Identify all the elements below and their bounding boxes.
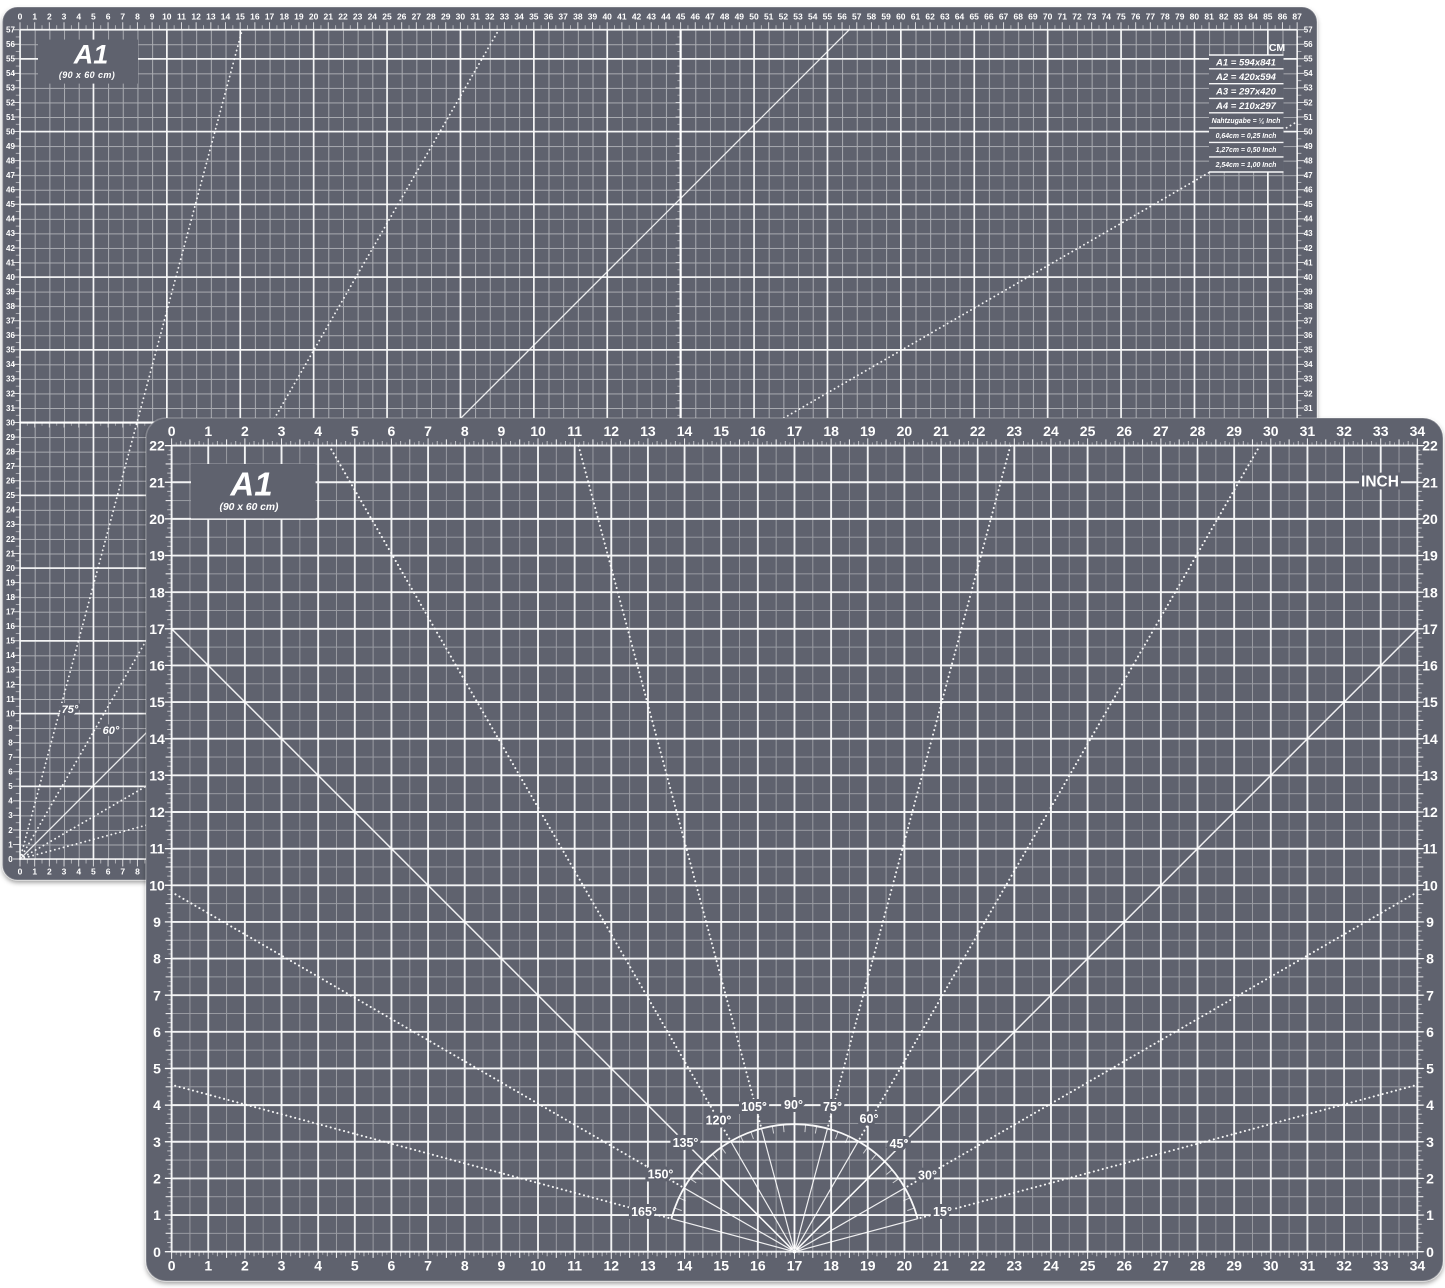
- svg-text:5: 5: [351, 423, 359, 439]
- svg-text:90°: 90°: [784, 1098, 803, 1112]
- svg-text:30°: 30°: [918, 1169, 937, 1183]
- svg-text:58: 58: [867, 11, 877, 21]
- svg-text:27: 27: [1153, 1258, 1169, 1274]
- svg-text:21: 21: [933, 1258, 949, 1274]
- svg-text:32: 32: [6, 389, 15, 398]
- svg-text:84: 84: [1248, 11, 1258, 21]
- svg-text:21: 21: [933, 423, 949, 439]
- svg-text:19: 19: [294, 11, 304, 21]
- svg-text:24: 24: [1043, 423, 1059, 439]
- svg-text:23: 23: [353, 11, 363, 21]
- svg-text:3: 3: [153, 1134, 161, 1150]
- svg-text:83: 83: [1234, 11, 1244, 21]
- svg-text:30: 30: [1263, 1258, 1279, 1274]
- svg-text:29: 29: [6, 433, 15, 442]
- svg-text:12: 12: [1422, 804, 1438, 820]
- svg-text:57: 57: [6, 26, 15, 35]
- svg-text:26: 26: [1116, 1258, 1132, 1274]
- svg-text:1: 1: [8, 840, 13, 849]
- svg-text:48: 48: [720, 11, 730, 21]
- svg-text:7: 7: [153, 987, 161, 1003]
- svg-text:32: 32: [1336, 1258, 1352, 1274]
- svg-text:11: 11: [177, 11, 186, 21]
- svg-text:16: 16: [1422, 658, 1438, 674]
- svg-text:2: 2: [47, 867, 52, 877]
- svg-text:5: 5: [8, 782, 13, 791]
- svg-text:14: 14: [677, 423, 693, 439]
- svg-text:64: 64: [955, 11, 965, 21]
- svg-text:46: 46: [1304, 186, 1313, 195]
- svg-text:86: 86: [1278, 11, 1288, 21]
- svg-text:82: 82: [1219, 11, 1229, 21]
- svg-text:42: 42: [6, 244, 15, 253]
- svg-text:31: 31: [1300, 423, 1316, 439]
- svg-text:6: 6: [1426, 1024, 1434, 1040]
- svg-text:30: 30: [456, 11, 466, 21]
- svg-text:22: 22: [338, 11, 348, 21]
- svg-text:31: 31: [6, 404, 15, 413]
- svg-text:1,27cm = 0,50 Inch: 1,27cm = 0,50 Inch: [1216, 147, 1277, 154]
- svg-text:26: 26: [1116, 423, 1132, 439]
- svg-text:17: 17: [787, 423, 803, 439]
- svg-text:6: 6: [153, 1024, 161, 1040]
- svg-text:0: 0: [1426, 1244, 1434, 1260]
- svg-text:44: 44: [6, 215, 15, 224]
- svg-text:2: 2: [8, 826, 13, 835]
- svg-text:27: 27: [6, 462, 15, 471]
- svg-text:60°: 60°: [860, 1112, 879, 1126]
- svg-text:INCH: INCH: [1361, 474, 1399, 491]
- svg-text:51: 51: [6, 113, 15, 122]
- svg-text:30: 30: [1263, 423, 1279, 439]
- svg-text:15: 15: [1422, 694, 1438, 710]
- svg-text:11: 11: [567, 423, 582, 439]
- svg-text:18: 18: [149, 584, 165, 600]
- svg-text:81: 81: [1204, 11, 1214, 21]
- svg-text:15: 15: [235, 11, 245, 21]
- svg-text:8: 8: [135, 11, 140, 21]
- svg-text:29: 29: [441, 11, 451, 21]
- svg-text:22: 22: [1422, 438, 1438, 454]
- svg-text:31: 31: [470, 11, 480, 21]
- svg-text:26: 26: [397, 11, 407, 21]
- svg-text:A1: A1: [73, 40, 109, 70]
- svg-text:10: 10: [530, 1258, 546, 1274]
- svg-text:5: 5: [91, 11, 96, 21]
- svg-text:56: 56: [1304, 40, 1313, 49]
- svg-text:77: 77: [1146, 11, 1156, 21]
- svg-text:16: 16: [250, 11, 260, 21]
- svg-text:16: 16: [750, 423, 766, 439]
- svg-text:24: 24: [368, 11, 378, 21]
- svg-text:3: 3: [1426, 1134, 1434, 1150]
- svg-text:20: 20: [149, 511, 165, 527]
- svg-text:56: 56: [6, 40, 15, 49]
- svg-text:27: 27: [1153, 423, 1169, 439]
- svg-text:17: 17: [149, 621, 165, 637]
- svg-text:12: 12: [149, 804, 165, 820]
- svg-text:165°: 165°: [631, 1205, 657, 1219]
- svg-text:30: 30: [6, 418, 15, 427]
- svg-text:2,54cm = 1,00 Inch: 2,54cm = 1,00 Inch: [1215, 162, 1277, 169]
- svg-text:39: 39: [588, 11, 598, 21]
- svg-text:8: 8: [1426, 951, 1434, 967]
- svg-text:0: 0: [8, 855, 13, 864]
- svg-text:21: 21: [149, 474, 165, 490]
- svg-text:7: 7: [120, 11, 125, 21]
- svg-text:54: 54: [1304, 69, 1313, 78]
- svg-text:45°: 45°: [890, 1137, 909, 1151]
- svg-text:40: 40: [6, 273, 15, 282]
- svg-text:14: 14: [221, 11, 231, 21]
- svg-text:1: 1: [32, 867, 37, 877]
- svg-text:28: 28: [426, 11, 436, 21]
- svg-text:A2 = 420x594: A2 = 420x594: [1215, 72, 1277, 83]
- svg-text:3: 3: [278, 1258, 286, 1274]
- svg-text:50: 50: [749, 11, 759, 21]
- svg-text:135°: 135°: [673, 1136, 699, 1150]
- svg-text:49: 49: [6, 142, 15, 151]
- svg-text:13: 13: [206, 11, 216, 21]
- svg-text:47: 47: [1304, 171, 1313, 180]
- svg-text:33: 33: [6, 375, 15, 384]
- svg-text:50: 50: [1304, 127, 1313, 136]
- svg-text:55: 55: [1304, 55, 1313, 64]
- svg-text:19: 19: [860, 1258, 876, 1274]
- svg-text:13: 13: [149, 767, 165, 783]
- svg-text:87: 87: [1292, 11, 1302, 21]
- svg-text:20: 20: [6, 564, 15, 573]
- svg-text:16: 16: [6, 622, 15, 631]
- svg-text:69: 69: [1028, 11, 1038, 21]
- svg-text:43: 43: [6, 229, 15, 238]
- svg-text:6: 6: [388, 423, 396, 439]
- svg-text:63: 63: [940, 11, 950, 21]
- svg-text:48: 48: [1304, 156, 1313, 165]
- svg-text:0: 0: [153, 1244, 161, 1260]
- svg-text:75: 75: [1116, 11, 1126, 21]
- svg-text:45: 45: [676, 11, 686, 21]
- svg-text:4: 4: [153, 1097, 161, 1113]
- svg-text:15: 15: [713, 423, 729, 439]
- svg-text:53: 53: [6, 84, 15, 93]
- svg-text:70: 70: [1043, 11, 1053, 21]
- svg-text:60: 60: [896, 11, 906, 21]
- svg-text:11: 11: [6, 695, 15, 704]
- svg-text:34: 34: [1410, 1258, 1426, 1274]
- svg-text:74: 74: [1102, 11, 1112, 21]
- svg-text:12: 12: [6, 680, 15, 689]
- svg-text:79: 79: [1175, 11, 1185, 21]
- svg-text:33: 33: [1304, 375, 1313, 384]
- svg-text:13: 13: [640, 423, 656, 439]
- svg-text:1: 1: [32, 11, 37, 21]
- svg-text:85: 85: [1263, 11, 1273, 21]
- svg-text:28: 28: [1190, 1258, 1206, 1274]
- svg-text:0: 0: [168, 423, 176, 439]
- svg-text:14: 14: [6, 651, 15, 660]
- svg-text:52: 52: [1304, 98, 1313, 107]
- svg-text:2: 2: [241, 423, 249, 439]
- svg-text:27: 27: [412, 11, 422, 21]
- svg-text:40: 40: [602, 11, 612, 21]
- svg-text:21: 21: [1422, 474, 1438, 490]
- svg-text:51: 51: [764, 11, 774, 21]
- svg-text:9: 9: [497, 423, 505, 439]
- svg-text:28: 28: [1190, 423, 1206, 439]
- svg-text:3: 3: [62, 11, 67, 21]
- svg-text:8: 8: [461, 423, 469, 439]
- svg-text:43: 43: [647, 11, 657, 21]
- svg-text:150°: 150°: [648, 1168, 674, 1182]
- svg-text:18: 18: [6, 593, 15, 602]
- svg-text:22: 22: [6, 535, 15, 544]
- svg-text:(90 x 60 cm): (90 x 60 cm): [59, 70, 115, 80]
- svg-text:17: 17: [265, 11, 275, 21]
- svg-text:0: 0: [18, 867, 23, 877]
- svg-text:7: 7: [8, 753, 13, 762]
- svg-text:56: 56: [837, 11, 847, 21]
- svg-text:32: 32: [1336, 423, 1352, 439]
- svg-text:19: 19: [149, 548, 165, 564]
- svg-text:17: 17: [1422, 621, 1438, 637]
- svg-text:A1 = 594x841: A1 = 594x841: [1215, 58, 1276, 69]
- svg-text:8: 8: [153, 951, 161, 967]
- svg-text:2: 2: [47, 11, 52, 21]
- svg-text:4: 4: [314, 423, 322, 439]
- svg-text:15: 15: [713, 1258, 729, 1274]
- svg-text:43: 43: [1304, 229, 1313, 238]
- svg-text:55: 55: [6, 55, 15, 64]
- svg-text:10: 10: [530, 423, 546, 439]
- svg-text:12: 12: [191, 11, 201, 21]
- svg-text:67: 67: [999, 11, 1009, 21]
- svg-text:105°: 105°: [741, 1100, 767, 1114]
- svg-text:25: 25: [6, 491, 15, 500]
- svg-text:A1: A1: [229, 466, 272, 503]
- svg-text:2: 2: [153, 1171, 161, 1187]
- svg-text:66: 66: [984, 11, 994, 21]
- svg-text:8: 8: [135, 867, 140, 877]
- svg-text:11: 11: [567, 1258, 582, 1274]
- svg-text:37: 37: [558, 11, 568, 21]
- svg-text:49: 49: [1304, 142, 1313, 151]
- svg-text:80: 80: [1190, 11, 1200, 21]
- svg-text:11: 11: [1423, 841, 1438, 857]
- svg-text:7: 7: [120, 867, 125, 877]
- svg-text:48: 48: [6, 156, 15, 165]
- svg-text:A4 = 210x297: A4 = 210x297: [1215, 101, 1277, 112]
- svg-text:22: 22: [149, 438, 165, 454]
- svg-text:49: 49: [735, 11, 745, 21]
- svg-text:42: 42: [1304, 244, 1313, 253]
- svg-text:17: 17: [6, 608, 15, 617]
- svg-text:19: 19: [1422, 548, 1438, 564]
- svg-text:20: 20: [897, 1258, 913, 1274]
- svg-text:9: 9: [497, 1258, 505, 1274]
- svg-text:42: 42: [632, 11, 642, 21]
- svg-text:72: 72: [1072, 11, 1082, 21]
- svg-text:38: 38: [6, 302, 15, 311]
- svg-text:53: 53: [793, 11, 803, 21]
- svg-text:10: 10: [6, 709, 15, 718]
- svg-text:20: 20: [309, 11, 319, 21]
- svg-text:4: 4: [1426, 1097, 1434, 1113]
- svg-text:11: 11: [150, 841, 165, 857]
- svg-text:62: 62: [925, 11, 935, 21]
- svg-text:6: 6: [388, 1258, 396, 1274]
- svg-text:29: 29: [1226, 423, 1242, 439]
- svg-text:12: 12: [603, 423, 619, 439]
- svg-text:8: 8: [8, 738, 13, 747]
- svg-text:5: 5: [153, 1061, 161, 1077]
- svg-text:13: 13: [640, 1258, 656, 1274]
- svg-text:52: 52: [779, 11, 789, 21]
- svg-text:32: 32: [485, 11, 495, 21]
- svg-text:1: 1: [204, 423, 212, 439]
- svg-text:24: 24: [1043, 1258, 1059, 1274]
- svg-text:26: 26: [6, 477, 15, 486]
- svg-text:24: 24: [6, 506, 15, 515]
- svg-text:39: 39: [1304, 287, 1313, 296]
- svg-text:22: 22: [970, 423, 986, 439]
- svg-text:14: 14: [149, 731, 165, 747]
- svg-text:6: 6: [106, 11, 111, 21]
- svg-text:38: 38: [1304, 302, 1313, 311]
- svg-text:35: 35: [529, 11, 539, 21]
- svg-text:5: 5: [1426, 1061, 1434, 1077]
- svg-text:14: 14: [1422, 731, 1438, 747]
- svg-text:75°: 75°: [823, 1100, 842, 1114]
- svg-text:52: 52: [6, 98, 15, 107]
- svg-text:4: 4: [314, 1258, 322, 1274]
- svg-text:2: 2: [241, 1258, 249, 1274]
- svg-text:23: 23: [6, 520, 15, 529]
- svg-text:22: 22: [970, 1258, 986, 1274]
- svg-text:5: 5: [91, 867, 96, 877]
- svg-text:7: 7: [424, 1258, 432, 1274]
- svg-text:54: 54: [808, 11, 818, 21]
- svg-text:34: 34: [514, 11, 524, 21]
- svg-text:20: 20: [1422, 511, 1438, 527]
- svg-text:34: 34: [6, 360, 15, 369]
- svg-text:CM: CM: [1269, 42, 1286, 54]
- svg-text:1: 1: [1426, 1207, 1434, 1223]
- svg-text:25: 25: [1080, 423, 1096, 439]
- svg-text:16: 16: [149, 658, 165, 674]
- svg-text:40: 40: [1304, 273, 1313, 282]
- svg-text:0: 0: [18, 11, 23, 21]
- svg-text:59: 59: [881, 11, 891, 21]
- svg-text:71: 71: [1058, 11, 1068, 21]
- svg-text:18: 18: [1422, 584, 1438, 600]
- svg-text:31: 31: [1304, 404, 1313, 413]
- svg-text:32: 32: [1304, 389, 1313, 398]
- svg-text:36: 36: [544, 11, 554, 21]
- svg-text:19: 19: [860, 423, 876, 439]
- svg-text:29: 29: [1226, 1258, 1242, 1274]
- svg-text:45: 45: [1304, 200, 1313, 209]
- svg-text:55: 55: [823, 11, 833, 21]
- svg-text:45: 45: [6, 200, 15, 209]
- svg-text:57: 57: [852, 11, 862, 21]
- svg-text:54: 54: [6, 69, 15, 78]
- svg-text:4: 4: [76, 867, 81, 877]
- svg-text:33: 33: [1373, 1258, 1389, 1274]
- svg-text:33: 33: [500, 11, 510, 21]
- svg-text:1: 1: [153, 1207, 161, 1223]
- svg-text:61: 61: [911, 11, 921, 21]
- svg-text:0,64cm = 0,25 Inch: 0,64cm = 0,25 Inch: [1216, 133, 1277, 140]
- svg-text:120°: 120°: [706, 1114, 732, 1128]
- svg-text:12: 12: [603, 1258, 619, 1274]
- svg-text:78: 78: [1160, 11, 1170, 21]
- svg-text:A3 = 297x420: A3 = 297x420: [1215, 87, 1277, 98]
- svg-text:36: 36: [6, 331, 15, 340]
- svg-text:76: 76: [1131, 11, 1141, 21]
- svg-text:18: 18: [280, 11, 290, 21]
- svg-text:13: 13: [6, 666, 15, 675]
- svg-text:7: 7: [424, 423, 432, 439]
- svg-text:1: 1: [204, 1258, 212, 1274]
- svg-text:18: 18: [823, 423, 839, 439]
- svg-text:6: 6: [106, 867, 111, 877]
- svg-text:20: 20: [897, 423, 913, 439]
- svg-text:41: 41: [1304, 258, 1313, 267]
- svg-text:3: 3: [62, 867, 67, 877]
- svg-text:68: 68: [1014, 11, 1024, 21]
- svg-text:73: 73: [1087, 11, 1097, 21]
- svg-text:10: 10: [149, 877, 165, 893]
- svg-text:23: 23: [1007, 423, 1023, 439]
- svg-text:39: 39: [6, 287, 15, 296]
- svg-text:14: 14: [677, 1258, 693, 1274]
- svg-text:46: 46: [691, 11, 701, 21]
- svg-text:19: 19: [6, 578, 15, 587]
- svg-text:57: 57: [1304, 26, 1313, 35]
- svg-text:34: 34: [1304, 360, 1313, 369]
- svg-text:25: 25: [1080, 1258, 1096, 1274]
- svg-text:0: 0: [168, 1258, 176, 1274]
- svg-text:36: 36: [1304, 331, 1313, 340]
- svg-text:(90 x 60 cm): (90 x 60 cm): [220, 502, 280, 513]
- svg-text:21: 21: [6, 549, 15, 558]
- svg-text:3: 3: [8, 811, 13, 820]
- svg-text:2: 2: [1426, 1171, 1434, 1187]
- svg-text:9: 9: [153, 914, 161, 930]
- svg-text:10: 10: [162, 11, 172, 21]
- svg-text:51: 51: [1304, 113, 1313, 122]
- svg-text:44: 44: [1304, 215, 1313, 224]
- svg-text:7: 7: [1426, 987, 1434, 1003]
- svg-text:33: 33: [1373, 423, 1389, 439]
- svg-text:21: 21: [324, 11, 334, 21]
- svg-text:37: 37: [1304, 317, 1313, 326]
- svg-text:44: 44: [661, 11, 671, 21]
- svg-text:13: 13: [1422, 767, 1438, 783]
- svg-text:47: 47: [705, 11, 715, 21]
- svg-text:8: 8: [461, 1258, 469, 1274]
- svg-text:16: 16: [750, 1258, 766, 1274]
- svg-text:50: 50: [6, 127, 15, 136]
- svg-text:35: 35: [1304, 346, 1313, 355]
- svg-text:75°: 75°: [62, 704, 79, 716]
- svg-text:41: 41: [6, 258, 15, 267]
- svg-text:46: 46: [6, 186, 15, 195]
- svg-text:9: 9: [1426, 914, 1434, 930]
- svg-text:15: 15: [6, 637, 15, 646]
- svg-text:28: 28: [6, 447, 15, 456]
